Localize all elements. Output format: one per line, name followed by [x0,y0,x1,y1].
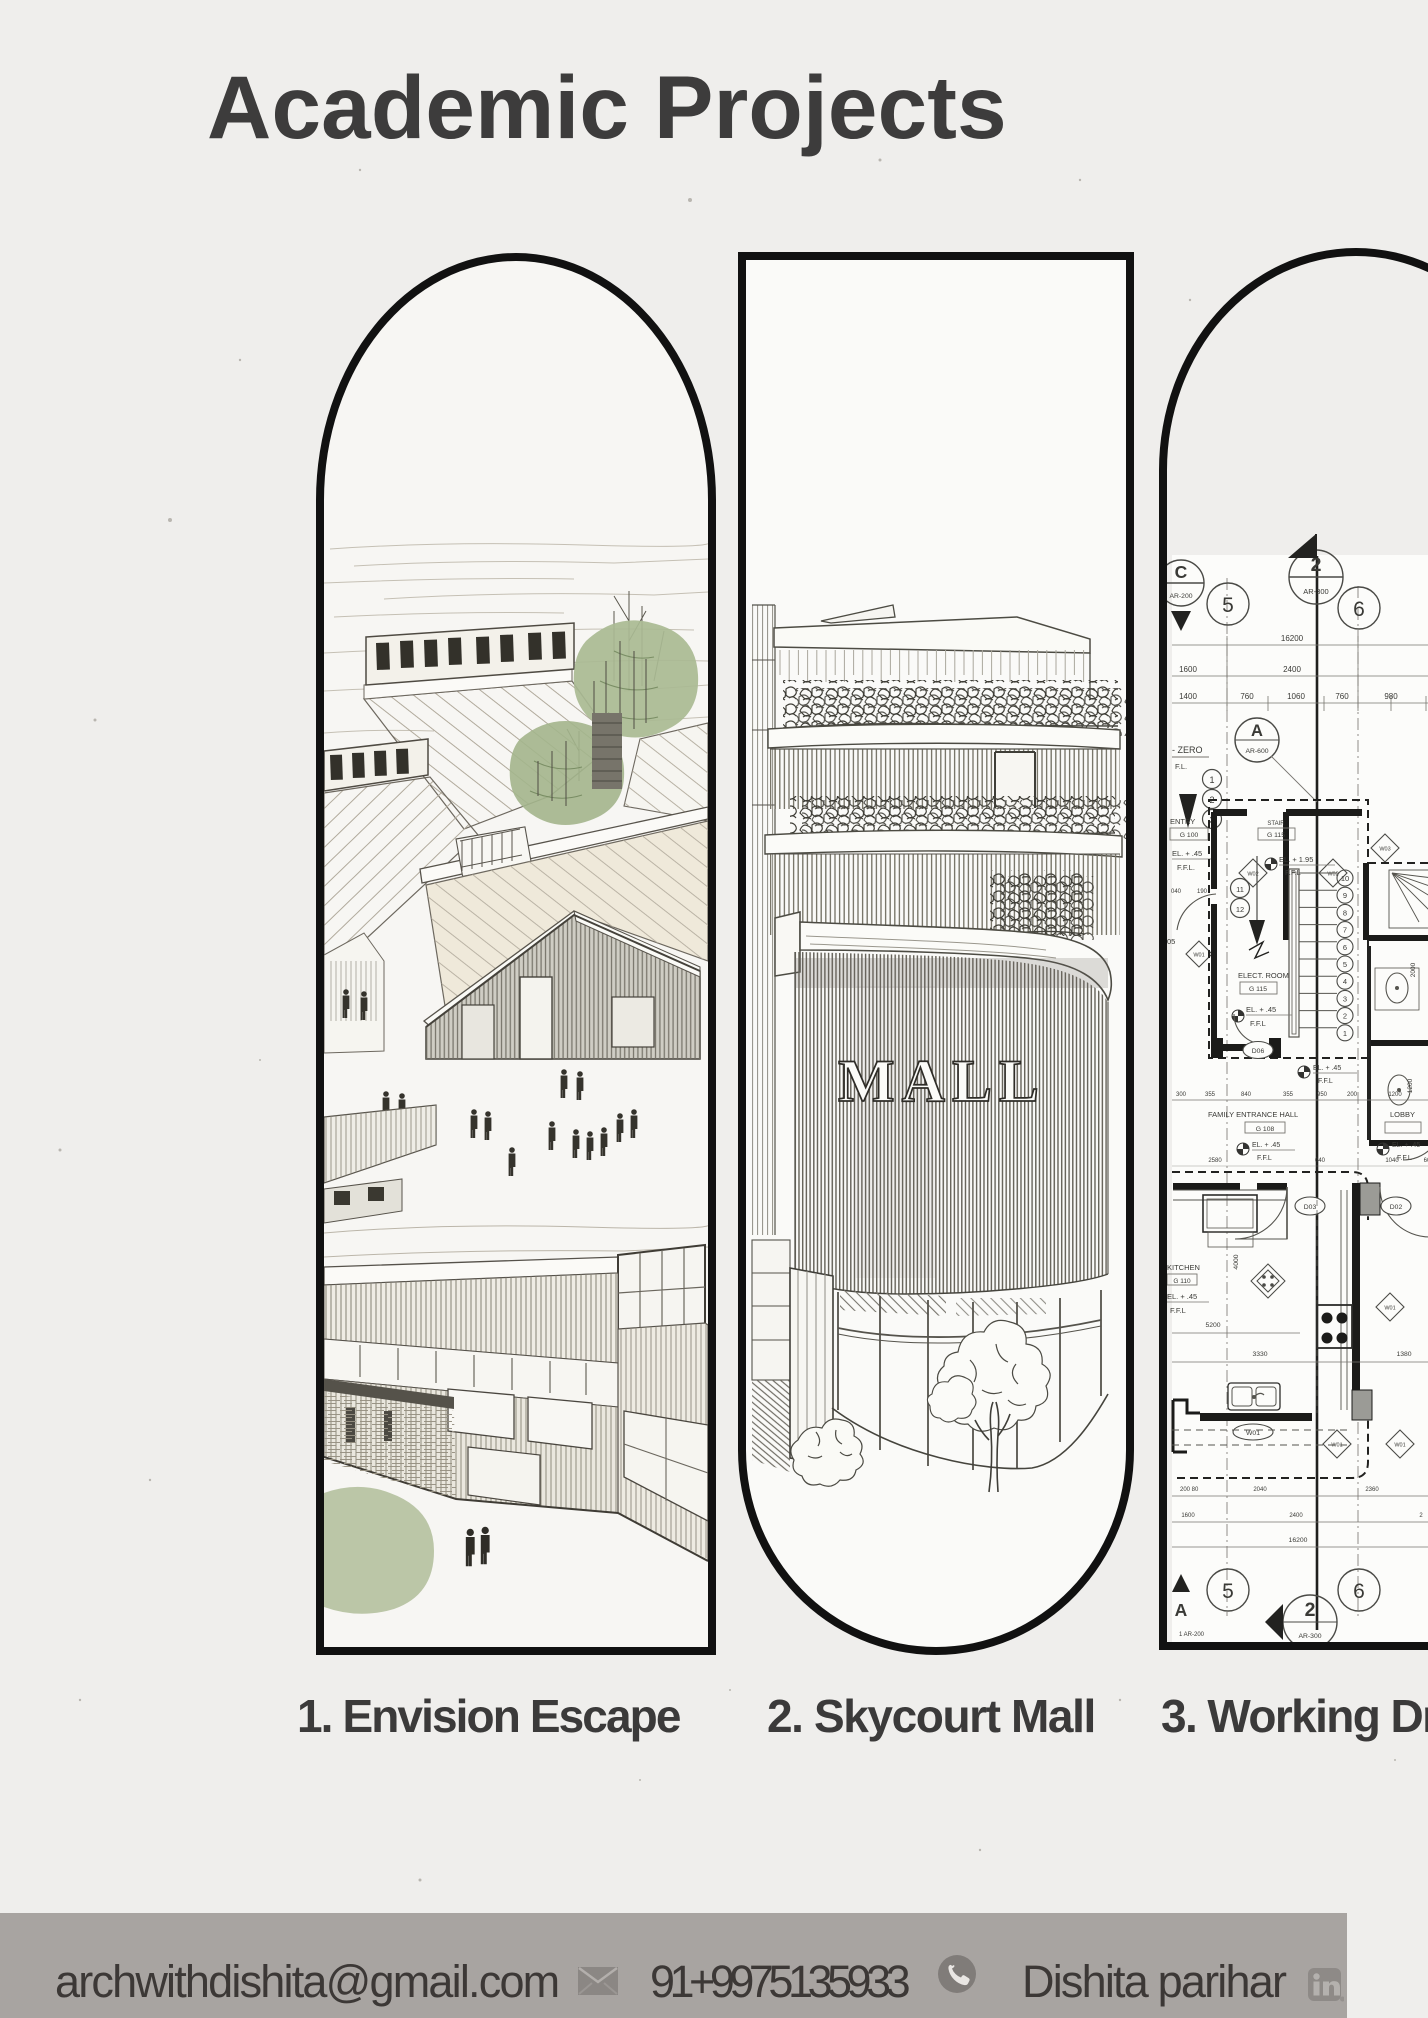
svg-text:F.F.L: F.F.L [1250,1019,1266,1028]
svg-text:D06: D06 [1252,1048,1265,1055]
svg-text:1 AR-200: 1 AR-200 [1179,1632,1205,1638]
svg-text:040: 040 [1315,1158,1326,1164]
svg-text:6: 6 [1353,598,1365,621]
svg-text:MALL: MALL [838,1048,1046,1114]
svg-text:355: 355 [1283,1092,1294,1098]
svg-text:1380: 1380 [1396,1351,1411,1358]
svg-text:840: 840 [1241,1092,1252,1098]
svg-text:1: 1 [1209,775,1214,785]
svg-text:2000: 2000 [1410,962,1417,977]
svg-text:D02: D02 [1390,1204,1403,1211]
svg-text:LOBBY: LOBBY [1390,1110,1415,1119]
svg-text:C: C [1175,562,1188,582]
svg-text:10: 10 [1341,874,1349,883]
svg-text:355: 355 [1205,1092,1216,1098]
svg-text:EL. + .45: EL. + .45 [1167,1292,1197,1301]
svg-text:11: 11 [1236,885,1244,894]
svg-text:7: 7 [1343,926,1347,935]
svg-text:A: A [1175,1600,1188,1620]
svg-text:760: 760 [1335,692,1349,701]
svg-text:F.F.L: F.F.L [1318,1078,1333,1085]
svg-text:2360: 2360 [1365,1487,1379,1493]
svg-text:5200: 5200 [1205,1322,1220,1329]
svg-text:2400: 2400 [1283,665,1301,674]
svg-text:KITCHEN: KITCHEN [1167,1263,1200,1272]
svg-text:EL. + .45: EL. + .45 [1172,849,1202,858]
svg-text:2040: 2040 [1253,1487,1267,1493]
svg-text:5: 5 [1222,594,1234,617]
svg-text:950: 950 [1317,1092,1328,1098]
svg-text:EL. + 1.95: EL. + 1.95 [1279,855,1313,864]
svg-text:3: 3 [1343,994,1347,1003]
svg-text:1: 1 [1343,1029,1347,1038]
svg-text:16200: 16200 [1281,634,1304,643]
svg-text:1200: 1200 [1407,1078,1414,1093]
svg-text:9: 9 [1343,891,1347,900]
svg-text:G 115: G 115 [1267,832,1285,839]
svg-text:6: 6 [1343,943,1347,952]
svg-text:F.F.L: F.F.L [1285,868,1301,877]
svg-text:4000: 4000 [1233,1254,1240,1269]
svg-text:05: 05 [1167,937,1175,946]
svg-text:F.F.L: F.F.L [1397,1155,1412,1162]
svg-text:A: A [1251,722,1263,740]
svg-text:200 80: 200 80 [1180,1487,1199,1493]
svg-text:ENTRY: ENTRY [1170,817,1195,826]
svg-text:12: 12 [1236,905,1244,914]
svg-text:980: 980 [1384,692,1398,701]
svg-text:G 108: G 108 [1256,1126,1275,1133]
svg-text:2400: 2400 [1289,1513,1303,1519]
svg-text:W01: W01 [1331,1443,1342,1449]
svg-text:1040: 1040 [1385,1158,1399,1164]
svg-text:G 100: G 100 [1180,832,1199,839]
svg-text:F.L.: F.L. [1175,762,1187,771]
svg-text:1600: 1600 [1179,665,1197,674]
svg-text:4: 4 [1343,977,1347,986]
svg-text:EL. + .45: EL. + .45 [1252,1142,1280,1149]
svg-text:1600: 1600 [1181,1513,1195,1519]
svg-text:AR-300: AR-300 [1298,1633,1321,1640]
svg-text:6: 6 [1353,1580,1365,1603]
svg-text:EL. + .45: EL. + .45 [1313,1065,1341,1072]
svg-text:040: 040 [1171,889,1182,895]
svg-text:W01: W01 [1394,1443,1405,1449]
svg-text:G 115: G 115 [1249,986,1267,993]
svg-text:2: 2 [1343,1012,1347,1021]
svg-text:16200: 16200 [1289,1537,1308,1544]
svg-text:EL. + .45: EL. + .45 [1246,1005,1276,1014]
svg-text:2: 2 [1305,1599,1316,1621]
svg-text:5: 5 [1343,960,1347,969]
svg-text:STAIR: STAIR [1267,821,1285,827]
svg-text:ELECT. ROOM: ELECT. ROOM [1238,971,1289,980]
svg-text:W01: W01 [1384,1306,1395,1312]
svg-text:3330: 3330 [1252,1351,1267,1358]
svg-text:W01: W01 [1246,1430,1260,1437]
svg-text:1200: 1200 [1388,1092,1402,1098]
svg-text:200: 200 [1347,1092,1358,1098]
svg-text:2580: 2580 [1208,1158,1222,1164]
svg-text:1400: 1400 [1179,692,1197,701]
svg-text:60: 60 [1424,1158,1428,1164]
svg-text:G 110: G 110 [1173,1278,1191,1285]
svg-text:1060: 1060 [1287,692,1305,701]
svg-text:W01: W01 [1193,953,1204,959]
svg-text:FAMILY ENTRANCE HALL: FAMILY ENTRANCE HALL [1208,1110,1298,1119]
svg-text:5: 5 [1222,1580,1234,1603]
svg-text:- ZERO: - ZERO [1172,745,1203,755]
svg-text:W03: W03 [1379,847,1390,853]
svg-text:F.F.L: F.F.L [1257,1155,1272,1162]
svg-text:300: 300 [1176,1092,1187,1098]
svg-text:D03: D03 [1304,1204,1317,1211]
svg-text:190: 190 [1197,889,1208,895]
svg-text:F.F.L: F.F.L [1170,1306,1186,1315]
svg-text:760: 760 [1240,692,1254,701]
svg-text:AR-200: AR-200 [1169,593,1192,600]
svg-text:EL. + .45: EL. + .45 [1392,1142,1420,1149]
svg-text:AR-300: AR-300 [1303,587,1328,596]
svg-text:AR-600: AR-600 [1245,748,1268,755]
svg-text:8: 8 [1343,908,1347,917]
svg-text:F.F.L.: F.F.L. [1177,863,1195,872]
